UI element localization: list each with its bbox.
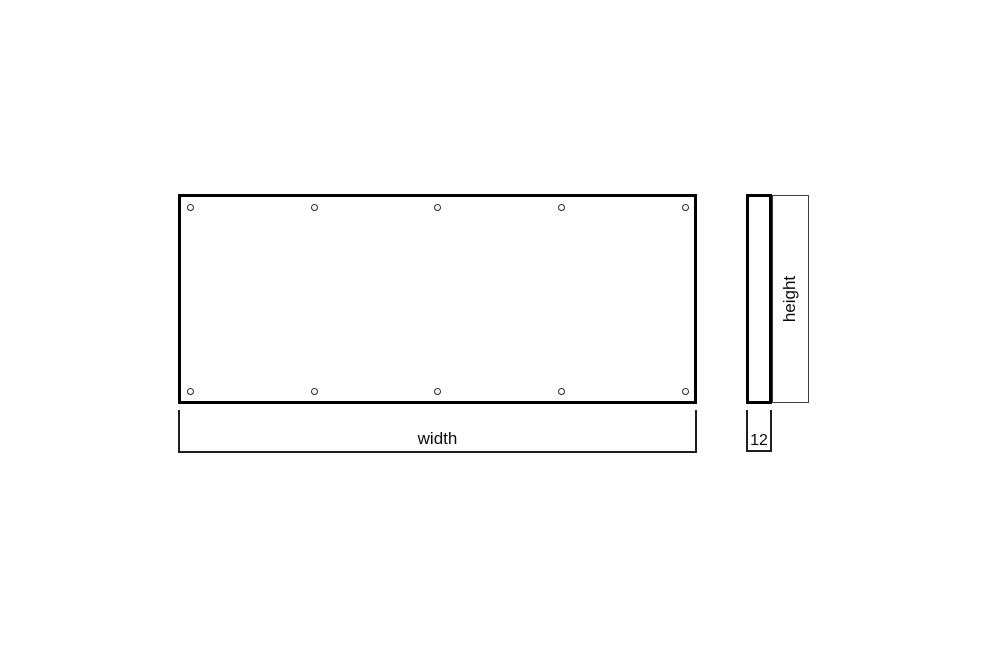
front-panel-outline <box>178 194 697 404</box>
mounting-hole <box>558 388 565 395</box>
side-panel-frame: height <box>772 195 809 403</box>
thickness-dimension-bracket: 12 <box>746 410 772 452</box>
mounting-hole <box>311 388 318 395</box>
mounting-hole <box>434 204 441 211</box>
mounting-hole <box>311 204 318 211</box>
dimension-diagram: width height 12 <box>0 0 1000 666</box>
mounting-hole <box>682 204 689 211</box>
width-dimension-label: width <box>180 429 695 449</box>
mounting-hole <box>187 388 194 395</box>
mounting-hole <box>434 388 441 395</box>
width-dimension-bracket: width <box>178 410 697 453</box>
side-panel-body <box>746 194 772 404</box>
thickness-dimension-label: 12 <box>748 432 770 450</box>
mounting-hole <box>682 388 689 395</box>
mounting-hole <box>558 204 565 211</box>
mounting-hole <box>187 204 194 211</box>
height-dimension-label: height <box>781 276 801 322</box>
